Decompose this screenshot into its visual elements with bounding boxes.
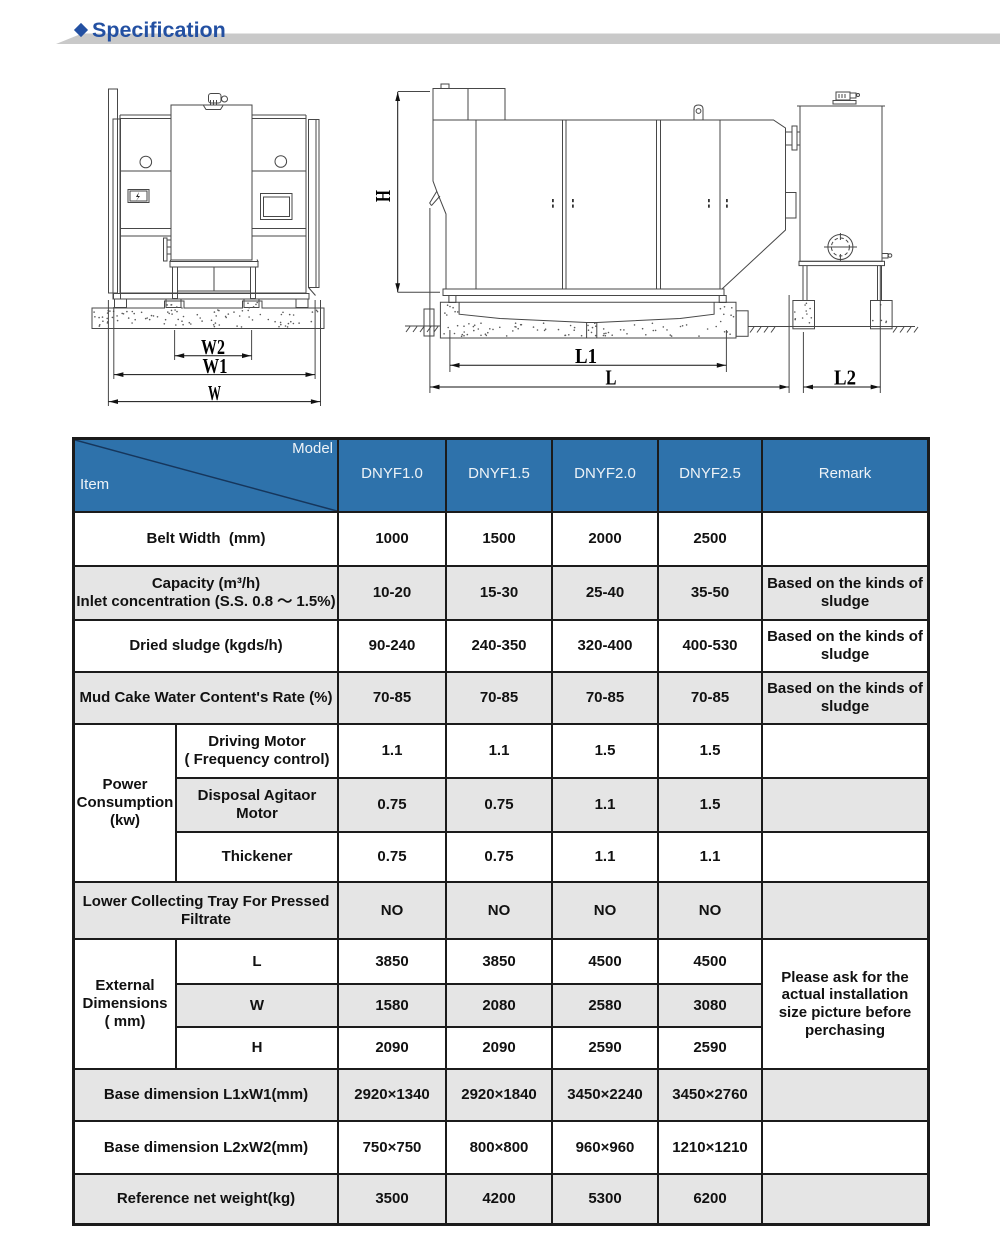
svg-text:W: W (208, 381, 221, 405)
svg-text:L2: L2 (834, 366, 856, 390)
svg-text:H: H (371, 190, 395, 202)
svg-text:L: L (606, 366, 617, 390)
svg-text:W1: W1 (203, 354, 228, 378)
svg-text:L1: L1 (575, 344, 597, 368)
